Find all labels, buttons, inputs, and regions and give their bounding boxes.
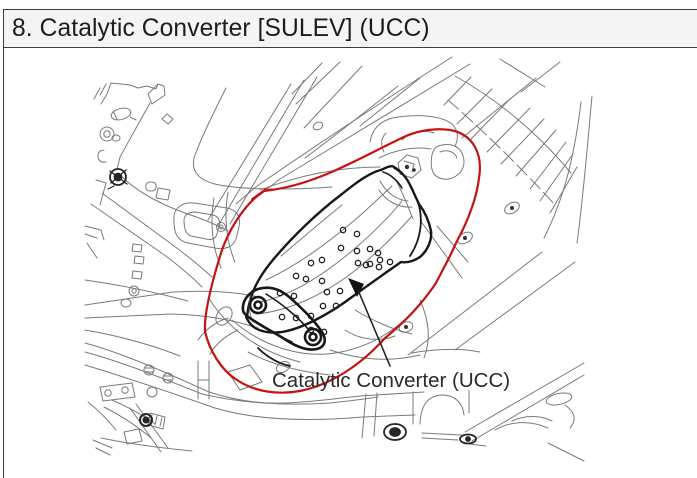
svg-text:Catalytic Converter (UCC): Catalytic Converter (UCC) [272,369,510,392]
